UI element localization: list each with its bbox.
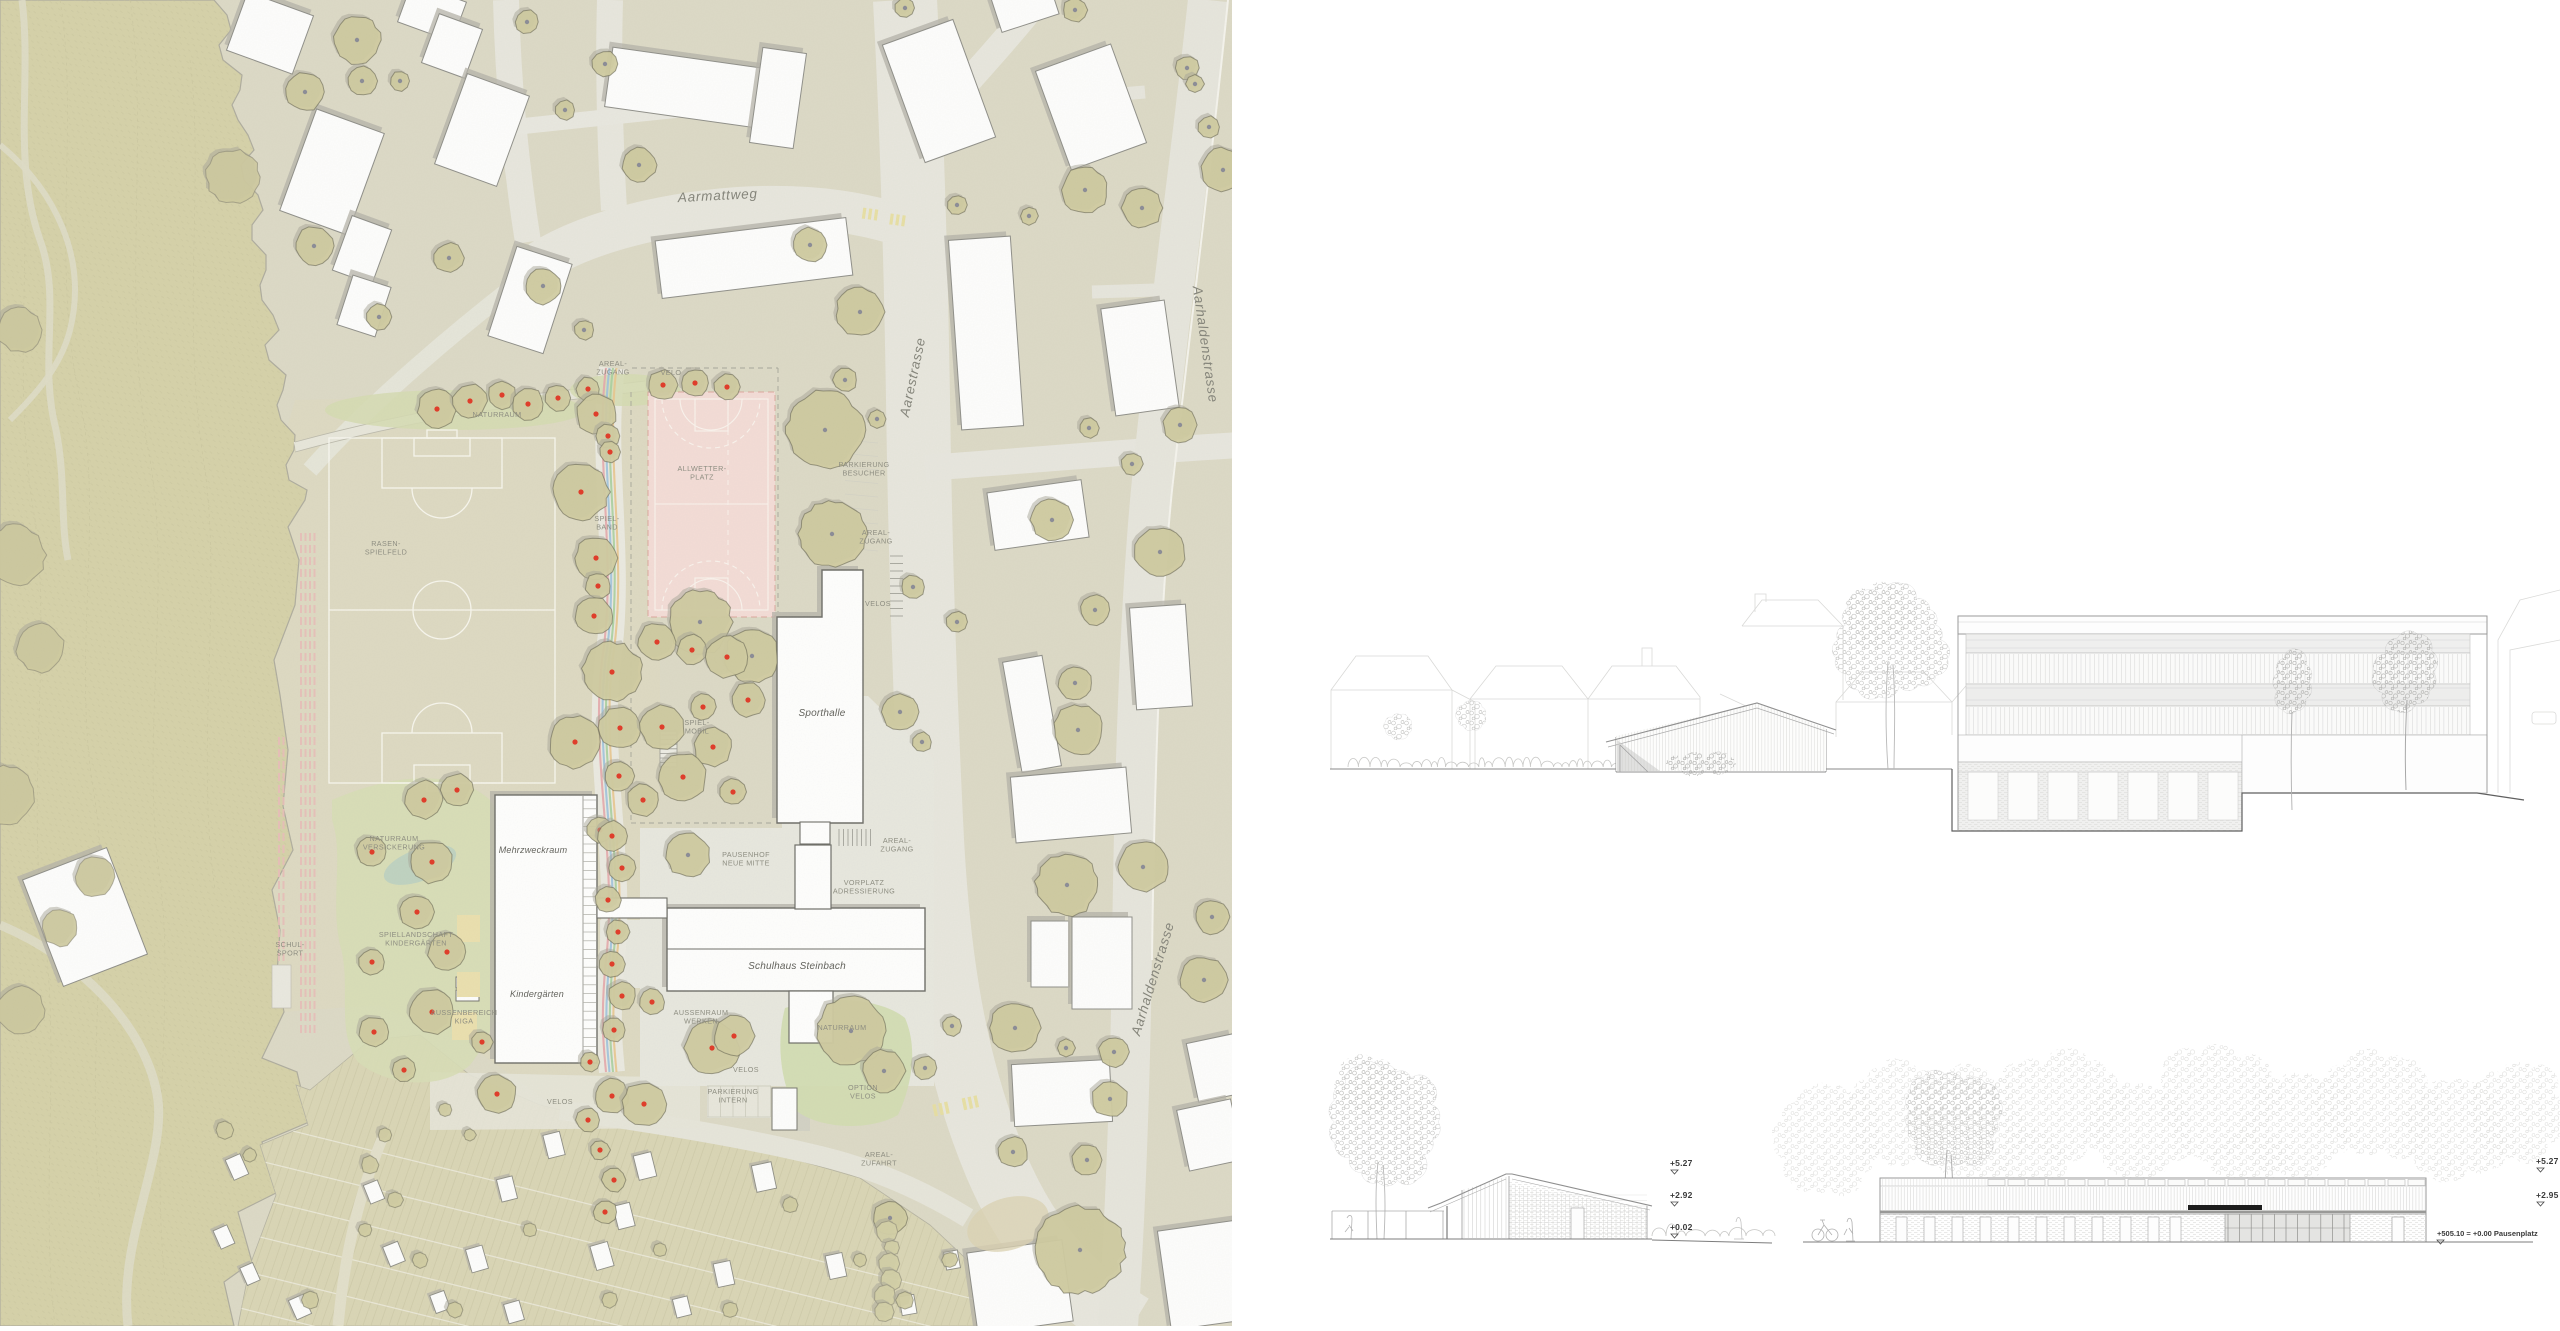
svg-text:+0.02: +0.02 — [1670, 1222, 1693, 1232]
svg-text:+2.95: +2.95 — [2536, 1190, 2559, 1200]
svg-text:+505.10 = +0.00 Pausenplatz: +505.10 = +0.00 Pausenplatz — [2437, 1229, 2538, 1238]
svg-text:+5.27: +5.27 — [2536, 1156, 2559, 1166]
svg-text:+5.27: +5.27 — [1670, 1158, 1693, 1168]
svg-text:+2.92: +2.92 — [1670, 1190, 1693, 1200]
